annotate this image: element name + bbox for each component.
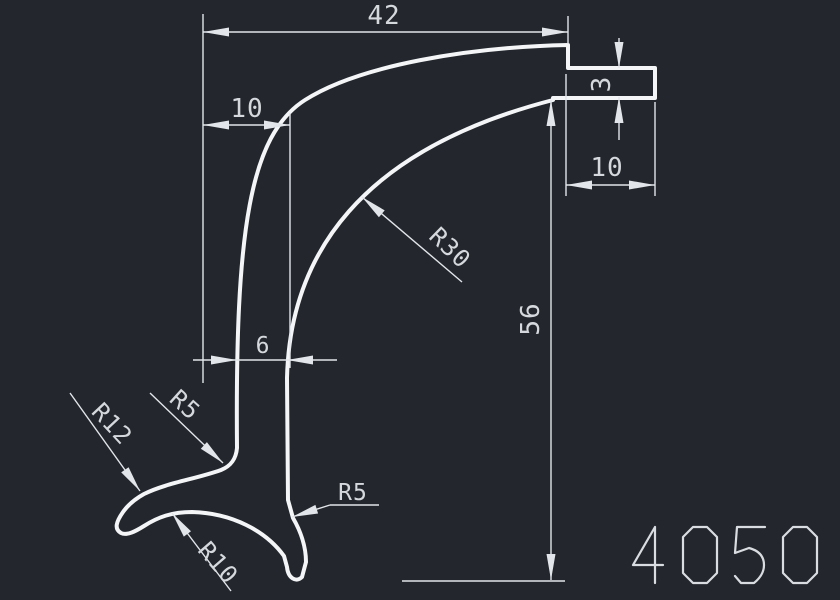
drawing-svg: 42 10 3 10 56 6 R30 R5 R12 R10 R5 xyxy=(0,0,840,600)
dim-3-label: 3 xyxy=(587,76,617,93)
dim-42-label: 42 xyxy=(367,1,400,31)
dim-56-label: 56 xyxy=(516,302,546,335)
cad-drawing-canvas: 42 10 3 10 56 6 R30 R5 R12 R10 R5 xyxy=(0,0,840,600)
dim-10-right-label: 10 xyxy=(590,153,623,183)
radius-r5-right-label: R5 xyxy=(338,480,368,506)
dim-6-label: 6 xyxy=(256,333,271,359)
dim-10-left-label: 10 xyxy=(230,94,263,124)
